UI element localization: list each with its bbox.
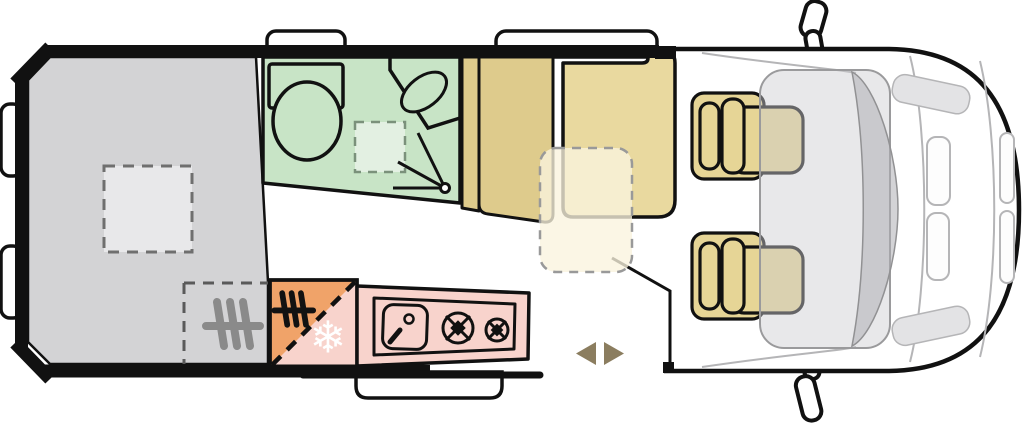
roof-skylight-rear (104, 166, 192, 252)
floorplan-svg: ❄ (0, 0, 1024, 427)
wardrobe-panel-left (462, 57, 479, 211)
grille-slot-2 (927, 213, 949, 280)
seat-backrest (722, 99, 744, 173)
snowflake-icon: ❄ (310, 313, 347, 364)
wall-corner-block (663, 362, 674, 373)
seat-backrest (722, 239, 744, 313)
grille-slot-3 (1000, 133, 1014, 203)
seat-headrest (700, 103, 719, 169)
seat-headrest (700, 243, 719, 309)
floorplan-stage: ❄ (0, 0, 1024, 427)
kitchen (357, 286, 529, 366)
grille-slot-1 (927, 137, 950, 205)
arrow-right-icon (604, 342, 624, 365)
wardrobe (462, 57, 553, 222)
faucet-base (405, 315, 414, 324)
arrow-left-icon (576, 342, 596, 365)
sliding-door-arrows (576, 342, 624, 365)
shower-tray (355, 122, 405, 172)
bathroom (263, 57, 460, 203)
fridge-heater-cabinet: ❄ (270, 280, 357, 367)
grille-slot-4 (1000, 211, 1014, 283)
door-pivot (441, 184, 450, 193)
door-partition-wall (612, 258, 670, 367)
toilet-bowl (273, 82, 341, 160)
wall-junction-block (655, 46, 676, 59)
table-dashed (540, 148, 632, 272)
